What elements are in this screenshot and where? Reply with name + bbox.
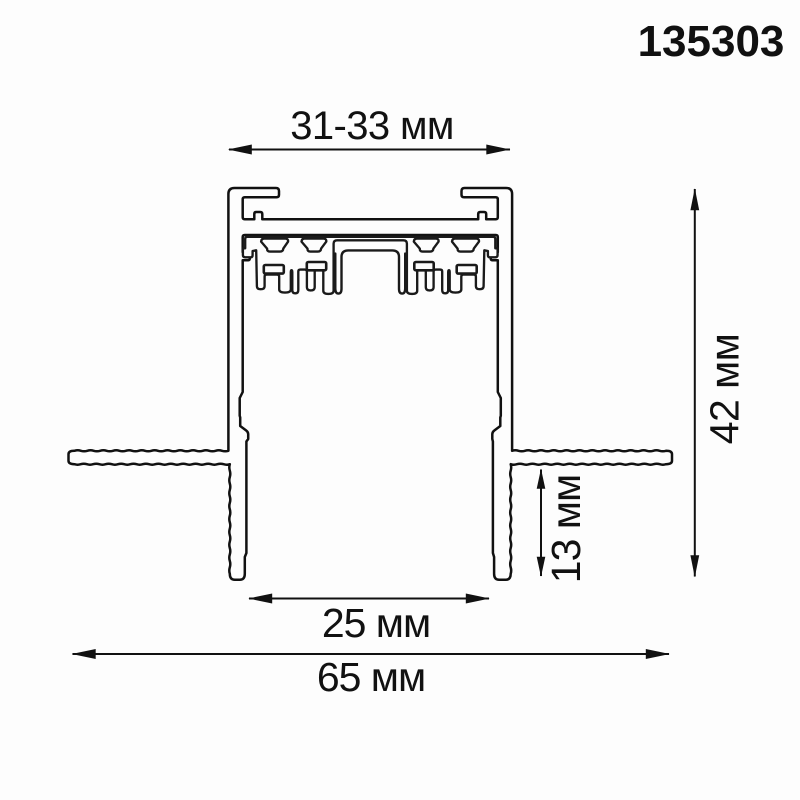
svg-text:65 мм: 65 мм	[317, 654, 425, 700]
svg-text:31-33 мм: 31-33 мм	[290, 104, 454, 148]
svg-text:13 мм: 13 мм	[543, 475, 589, 583]
svg-text:42 мм: 42 мм	[702, 334, 748, 444]
svg-text:25 мм: 25 мм	[322, 600, 430, 646]
svg-text:135303: 135303	[638, 17, 785, 66]
